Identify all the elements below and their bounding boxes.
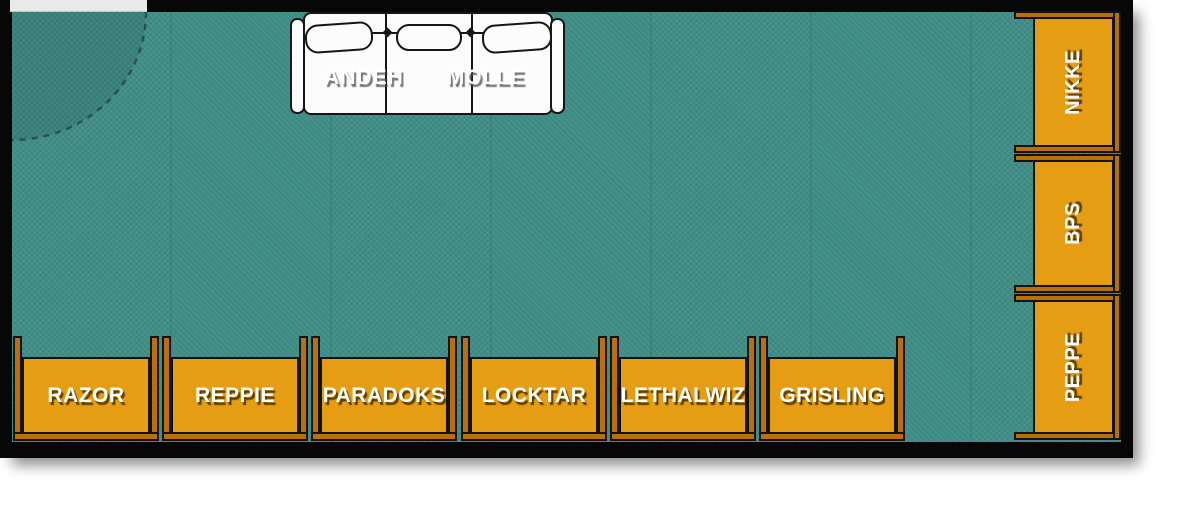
desk-surface: GRISLING — [768, 357, 896, 434]
desk-frame — [759, 336, 768, 441]
desk-label: NIKKE — [1062, 50, 1085, 115]
desk-frame — [598, 336, 607, 441]
desk-lethalwiz[interactable]: LETHALWIZ — [610, 336, 756, 441]
desk-razor[interactable]: RAZOR — [13, 336, 159, 441]
desk-peppe[interactable]: PEPPE — [1014, 294, 1121, 440]
desk-grisling[interactable]: GRISLING — [759, 336, 905, 441]
couch-seat-label-molle: MOLLE — [431, 66, 541, 90]
desk-locktar[interactable]: LOCKTAR — [461, 336, 607, 441]
desk-frame — [448, 336, 457, 441]
door-opening — [10, 0, 147, 12]
desk-surface: RAZOR — [22, 357, 150, 434]
desk-frame — [299, 336, 308, 441]
desk-surface: PARADOKS — [320, 357, 448, 434]
couch-armrest-right — [550, 18, 565, 114]
desk-frame — [311, 336, 320, 441]
desk-surface: PEPPE — [1033, 300, 1114, 434]
desk-frame — [162, 336, 171, 441]
couch-back-cushion — [396, 24, 462, 51]
desk-frame — [150, 336, 159, 441]
desk-label: GRISLING — [779, 384, 885, 408]
desk-label: LETHALWIZ — [621, 384, 746, 408]
desk-label: BPS — [1062, 202, 1085, 245]
desk-surface: REPPIE — [171, 357, 299, 434]
desk-surface: NIKKE — [1033, 17, 1114, 147]
desk-surface: BPS — [1033, 160, 1114, 287]
desk-bps[interactable]: BPS — [1014, 154, 1121, 293]
desk-nikke[interactable]: NIKKE — [1014, 11, 1121, 153]
desk-frame — [747, 336, 756, 441]
desk-reppie[interactable]: REPPIE — [162, 336, 308, 441]
desk-frame — [1113, 294, 1121, 440]
couch-back-cushion — [304, 21, 374, 55]
desk-label: PARADOKS — [323, 384, 446, 408]
desk-label: RAZOR — [47, 384, 124, 408]
couch-back-cushion — [481, 21, 553, 55]
desk-frame — [896, 336, 905, 441]
desk-frame — [610, 336, 619, 441]
couch-seat-label-andeh: ANDEH — [309, 66, 419, 90]
desk-label: PEPPE — [1062, 332, 1085, 401]
desk-label: REPPIE — [195, 384, 275, 408]
desk-paradoks[interactable]: PARADOKS — [311, 336, 457, 441]
desk-surface: LETHALWIZ — [619, 357, 747, 434]
desk-frame — [461, 336, 470, 441]
desk-frame — [1113, 154, 1121, 293]
couch-armrest-left — [290, 18, 305, 114]
desk-frame — [13, 336, 22, 441]
desk-label: LOCKTAR — [482, 384, 587, 408]
desk-frame — [1113, 11, 1121, 153]
floorplan-canvas: ANDEH MOLLE RAZOR REPPIE PARADOKS LOCKTA… — [0, 0, 1200, 528]
desk-surface: LOCKTAR — [470, 357, 598, 434]
